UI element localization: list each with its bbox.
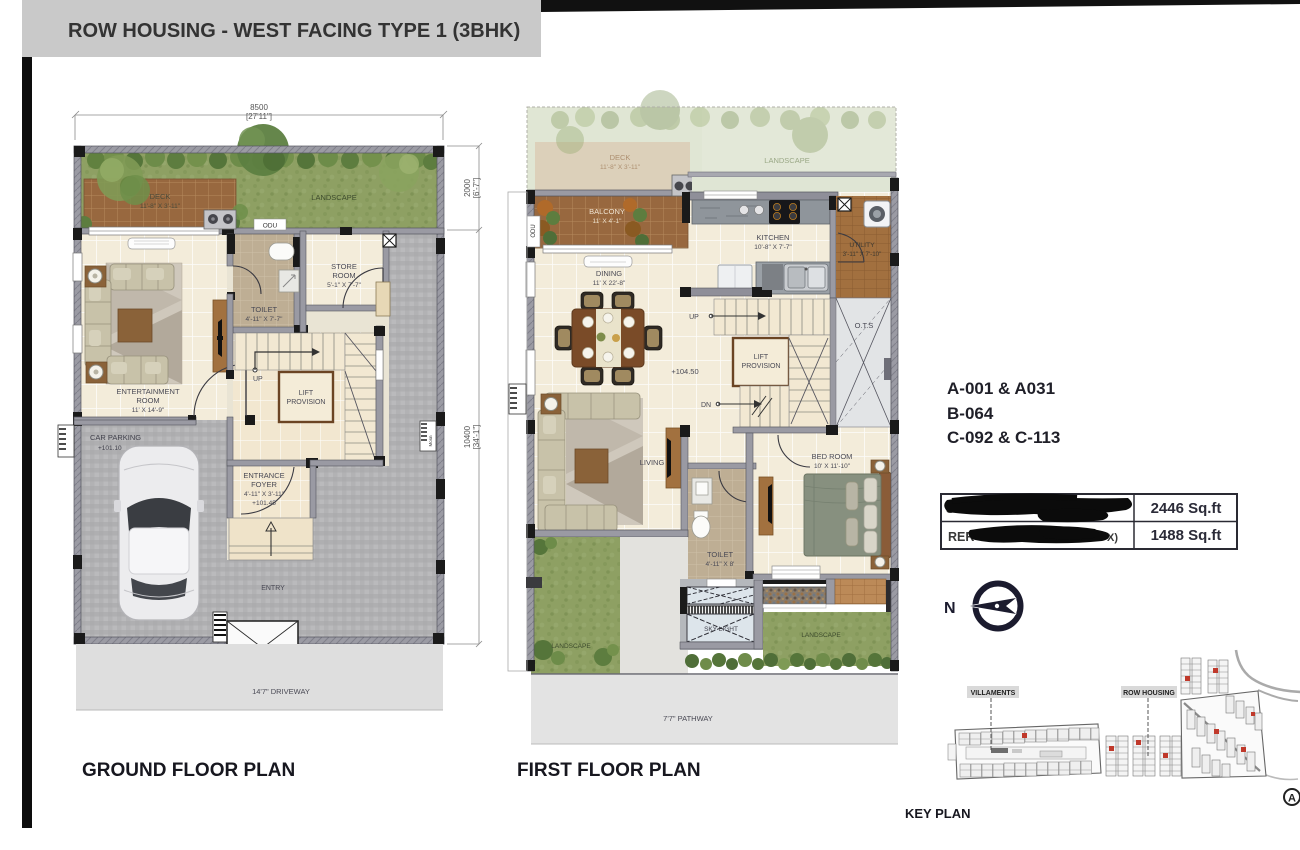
svg-text:DN: DN (701, 402, 711, 409)
svg-text:11' X 22'-8": 11' X 22'-8" (593, 280, 626, 287)
svg-text:LANDSCAPE: LANDSCAPE (801, 632, 841, 639)
svg-text:ODU: ODU (263, 223, 278, 230)
svg-text:3'-11" X 7'-10": 3'-11" X 7'-10" (843, 251, 882, 258)
svg-text:FIRST FLOOR PLAN: FIRST FLOOR PLAN (517, 760, 701, 781)
svg-text:FOYER: FOYER (251, 480, 277, 489)
svg-text:11'-8" X 3'-11": 11'-8" X 3'-11" (600, 164, 641, 171)
svg-text:UP: UP (689, 314, 699, 321)
svg-text:VILLAMENTS: VILLAMENTS (971, 690, 1016, 697)
svg-text:SKY LIGHT: SKY LIGHT (704, 626, 738, 633)
svg-text:[27'11"]: [27'11"] (246, 112, 272, 121)
svg-text:11'-8" X 3'-11": 11'-8" X 3'-11" (140, 203, 181, 210)
svg-text:GROUND FLOOR PLAN: GROUND FLOOR PLAN (82, 760, 295, 781)
svg-text:2446 Sq.ft: 2446 Sq.ft (1151, 500, 1222, 517)
svg-text:ROW HOUSING: ROW HOUSING (1123, 690, 1175, 697)
svg-text:ROW HOUSING - WEST FACING TYPE: ROW HOUSING - WEST FACING TYPE 1 (3BHK) (68, 20, 520, 42)
svg-text:10' X 11'-10": 10' X 11'-10" (814, 463, 851, 470)
svg-text:ENTRY: ENTRY (261, 585, 285, 592)
svg-text:ENTERTAINMENT: ENTERTAINMENT (116, 387, 179, 396)
svg-text:DECK: DECK (150, 192, 171, 201)
svg-text:A: A (1288, 793, 1296, 805)
svg-text:LANDSCAPE: LANDSCAPE (764, 156, 809, 165)
svg-text:X): X) (1107, 532, 1118, 544)
svg-text:ROOM: ROOM (136, 396, 159, 405)
svg-text:LANDSCAPE: LANDSCAPE (311, 193, 356, 202)
svg-text:N: N (944, 600, 956, 617)
svg-text:+101.45: +101.45 (252, 500, 276, 507)
svg-text:CAR PARKING: CAR PARKING (90, 433, 141, 442)
svg-text:TOILET: TOILET (251, 305, 278, 314)
svg-text:A-001 & A031: A-001 & A031 (947, 379, 1055, 398)
svg-text:ENTRANCE: ENTRANCE (243, 471, 284, 480)
svg-text:LANDSCAPE: LANDSCAPE (551, 643, 591, 650)
svg-text:B-064: B-064 (947, 404, 994, 423)
svg-text:DECK: DECK (610, 153, 631, 162)
svg-text:C-092 & C-113: C-092 & C-113 (947, 428, 1060, 447)
svg-text:STORE: STORE (331, 262, 357, 271)
svg-text:BED ROOM: BED ROOM (812, 452, 853, 461)
svg-text:LIVING: LIVING (640, 458, 665, 467)
svg-text:11' X 14'-9": 11' X 14'-9" (132, 407, 165, 414)
svg-text:PROVISION: PROVISION (287, 399, 326, 406)
svg-text:4'-11" X 3'-11": 4'-11" X 3'-11" (244, 491, 285, 498)
svg-text:ODU: ODU (531, 224, 537, 237)
svg-text:+104.50: +104.50 (671, 367, 698, 376)
svg-text:5'-1" X 7'-7": 5'-1" X 7'-7" (327, 282, 362, 289)
svg-text:TOILET: TOILET (707, 550, 734, 559)
svg-text:10'-8" X 7'-7": 10'-8" X 7'-7" (754, 244, 792, 251)
svg-text:[6'-7"]: [6'-7"] (472, 178, 481, 198)
svg-text:8500: 8500 (250, 103, 268, 112)
svg-text:UP: UP (253, 376, 263, 383)
svg-text:4'-11" X 7'-7": 4'-11" X 7'-7" (246, 316, 284, 323)
svg-text:UTILITY: UTILITY (849, 242, 875, 249)
svg-text:11' X 4'-1": 11' X 4'-1" (593, 218, 623, 225)
svg-text:4'-11" X 8': 4'-11" X 8' (706, 561, 735, 568)
svg-text:LIFT: LIFT (299, 390, 314, 397)
svg-text:2000: 2000 (463, 179, 472, 197)
svg-text:O.T.S: O.T.S (855, 321, 874, 330)
svg-text:LIFT: LIFT (754, 354, 769, 361)
svg-text:BALCONY: BALCONY (589, 207, 625, 216)
svg-text:10400: 10400 (463, 425, 472, 448)
svg-text:Mosn: Mosn (428, 435, 433, 447)
svg-text:[34'-1"]: [34'-1"] (472, 425, 481, 450)
svg-text:DINING: DINING (596, 269, 622, 278)
svg-text:1488 Sq.ft: 1488 Sq.ft (1151, 527, 1222, 544)
svg-text:14'7" DRIVEWAY: 14'7" DRIVEWAY (252, 687, 310, 696)
svg-text:PROVISION: PROVISION (742, 363, 781, 370)
svg-text:ROOM: ROOM (332, 271, 355, 280)
svg-text:7'7" PATHWAY: 7'7" PATHWAY (663, 714, 713, 723)
svg-text:KEY PLAN: KEY PLAN (905, 806, 971, 821)
svg-text:+101.10: +101.10 (98, 445, 122, 452)
svg-text:KITCHEN: KITCHEN (757, 233, 790, 242)
